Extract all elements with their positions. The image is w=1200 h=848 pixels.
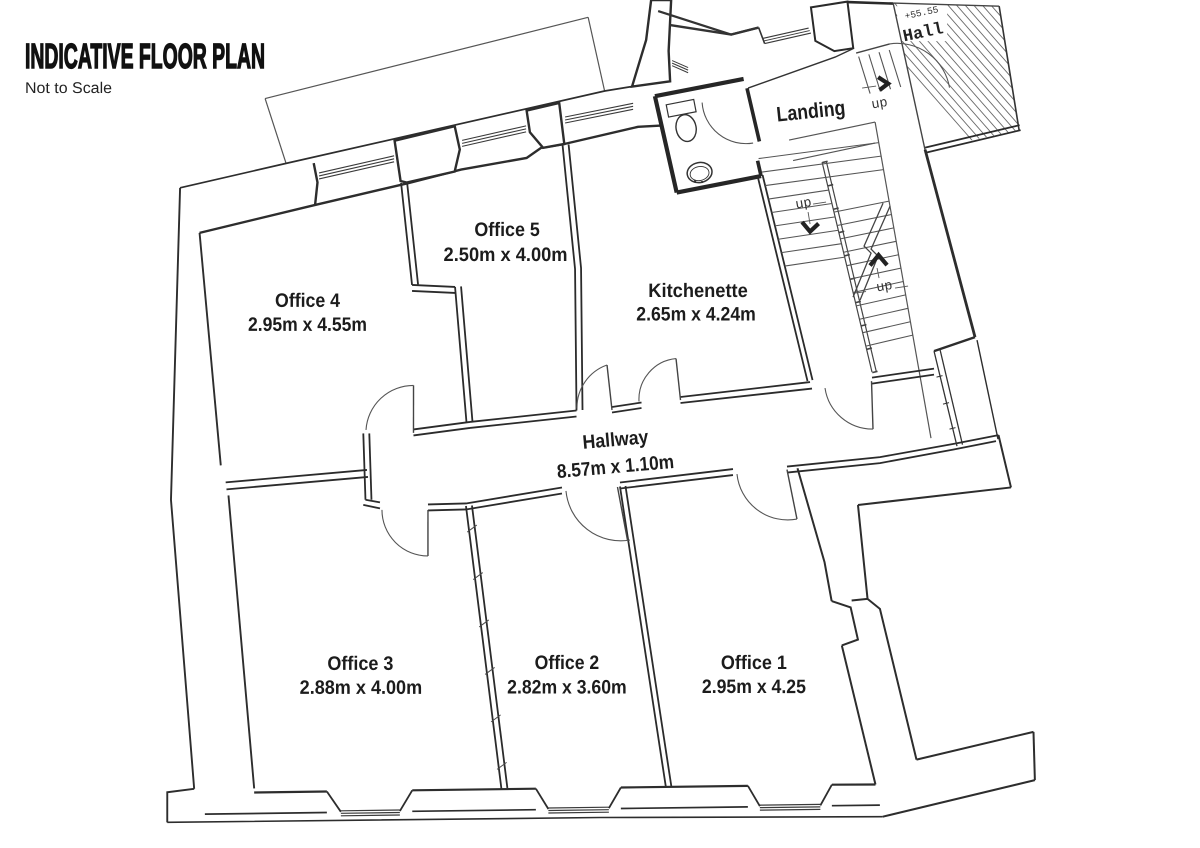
svg-text:2.82m x 3.60m: 2.82m x 3.60m [507,676,627,698]
svg-text:Landing: Landing [775,97,846,127]
svg-text:Office 5: Office 5 [474,219,540,241]
svg-text:Office 2: Office 2 [535,652,600,674]
svg-text:2.95m x 4.25: 2.95m x 4.25 [702,676,806,698]
svg-text:2.50m x 4.00m: 2.50m x 4.00m [444,244,568,266]
svg-text:up: up [794,196,813,214]
svg-text:Office 1: Office 1 [721,652,787,674]
svg-text:Kitchenette: Kitchenette [648,280,748,302]
svg-text:up: up [870,96,889,114]
svg-text:Not to Scale: Not to Scale [25,80,112,97]
svg-text:INDICATIVE FLOOR PLAN: INDICATIVE FLOOR PLAN [25,37,265,76]
svg-text:Office 3: Office 3 [327,653,393,675]
svg-text:Hallway: Hallway [582,426,650,454]
svg-text:up: up [875,279,894,297]
svg-text:2.65m x 4.24m: 2.65m x 4.24m [636,304,756,326]
svg-text:Office 4: Office 4 [275,290,340,312]
svg-text:2.95m x 4.55m: 2.95m x 4.55m [248,314,367,336]
svg-text:2.88m x 4.00m: 2.88m x 4.00m [300,677,423,699]
